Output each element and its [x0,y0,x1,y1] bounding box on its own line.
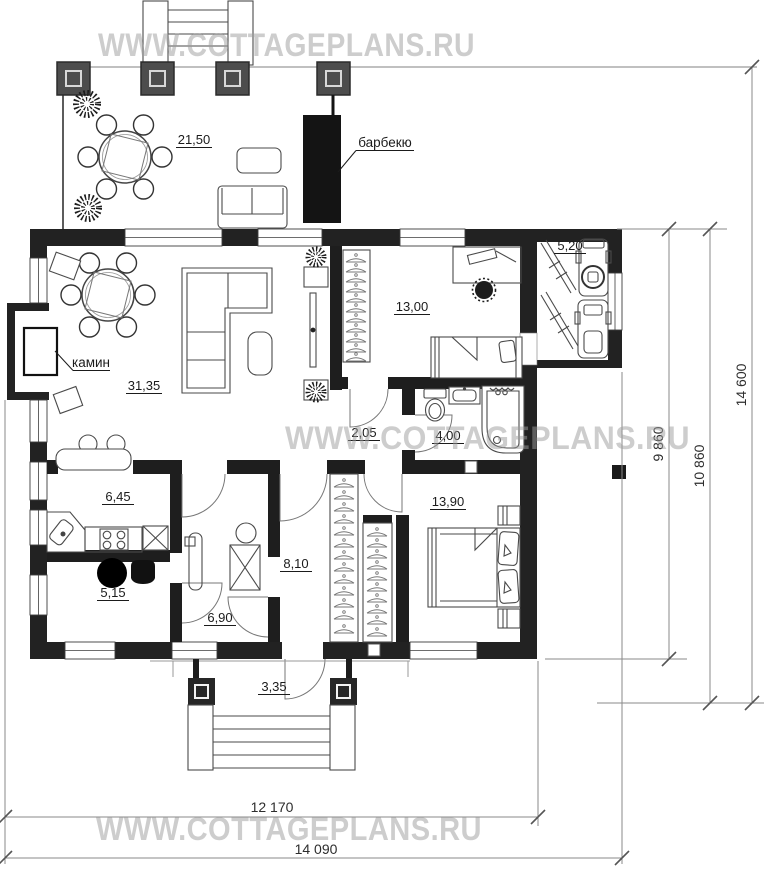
pier [612,465,626,479]
barbecue [303,115,341,223]
label-bedroom1: 13,00 [396,299,429,314]
coffee-table [237,148,281,173]
bar-counter [56,449,131,470]
label-bedroom2: 13,90 [432,494,465,509]
plant-icon [77,197,99,219]
label-storage: 5,20 [557,238,582,253]
dim-height-middle: 10 860 [691,444,707,487]
terrace-dining-set [78,115,172,199]
terrace-sofa [218,186,287,228]
toilet [424,389,446,421]
label-kitchen: 6,45 [105,489,130,504]
pantry-table [97,558,127,588]
label-porch: 3,35 [261,679,286,694]
wall-vent [465,461,477,473]
label-pantry: 5,15 [100,585,125,600]
ottoman [248,332,272,375]
terrace-column [317,62,350,95]
fireplace [24,328,57,375]
fridge [143,526,168,550]
label-fireplace: камин [72,355,110,370]
terrace-column [216,62,249,95]
label-corridor: 8,10 [283,556,308,571]
terrace-column [57,62,90,95]
terrace-column [141,62,174,95]
label-terrace: 21,50 [178,132,211,147]
watermark-middle: WWW.COTTAGEPLANS.RU [285,420,690,456]
dim-height-outer: 14 600 [733,363,749,406]
desk-chair [475,281,493,299]
pantry-chair [131,560,155,584]
porch [150,659,410,770]
sink [449,387,480,404]
porch-column [330,678,357,705]
watermark-bottom: WWW.COTTAGEPLANS.RU [96,811,482,847]
floor-plan: 12 170 14 090 9 860 10 860 14 600 21,50 … [0,0,767,874]
bed-single [431,337,522,378]
entrance-door [285,659,325,699]
linen-closet [230,545,260,590]
wall-vent [368,644,380,656]
stove [100,529,128,550]
watermark-top: WWW.COTTAGEPLANS.RU [98,27,475,63]
label-hallway: 6,90 [207,610,232,625]
label-barbecue: барбекю [358,135,412,150]
bed-double [428,528,520,607]
plant-icon [76,93,98,115]
porch-column [188,678,215,705]
floor-plan-page: 12 170 14 090 9 860 10 860 14 600 21,50 … [0,0,767,874]
label-living: 31,35 [128,378,161,393]
porch-stairs [188,705,355,770]
